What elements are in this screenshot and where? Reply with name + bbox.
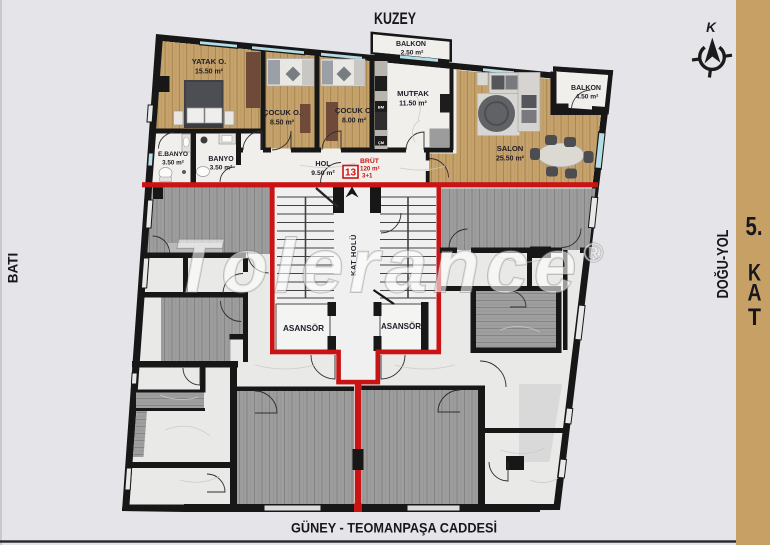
svg-text:13: 13 — [345, 168, 357, 179]
svg-text:BM: BM — [378, 105, 385, 110]
svg-text:5.: 5. — [746, 211, 763, 241]
svg-text:ASANSÖR: ASANSÖR — [381, 321, 421, 331]
svg-text:®: ® — [583, 238, 603, 268]
svg-text:11.50 m²: 11.50 m² — [399, 101, 427, 108]
svg-text:BATI: BATI — [6, 253, 21, 284]
svg-text:3.50 m²: 3.50 m² — [210, 165, 234, 172]
svg-text:DOĞU-YOL: DOĞU-YOL — [714, 230, 732, 299]
svg-text:3.50 m²: 3.50 m² — [162, 160, 184, 167]
svg-text:GÜNEY - TEOMANPAŞA CADDESİ: GÜNEY - TEOMANPAŞA CADDESİ — [291, 520, 497, 536]
svg-text:BRÜT: BRÜT — [360, 156, 380, 165]
svg-text:BALKON: BALKON — [396, 41, 426, 48]
svg-text:2.50 m²: 2.50 m² — [401, 50, 425, 57]
svg-text:K: K — [706, 20, 717, 35]
svg-text:ÇM: ÇM — [378, 140, 385, 145]
svg-text:T: T — [748, 304, 761, 331]
svg-text:ASANSÖR: ASANSÖR — [283, 323, 324, 333]
svg-text:ÇOCUK O.: ÇOCUK O. — [335, 106, 373, 115]
svg-text:9.50 m²: 9.50 m² — [311, 170, 335, 177]
svg-text:BALKON: BALKON — [571, 85, 601, 92]
svg-text:15.50 m²: 15.50 m² — [195, 69, 224, 76]
svg-text:SALON: SALON — [497, 144, 524, 153]
svg-text:120 m²: 120 m² — [360, 166, 380, 173]
svg-text:MUTFAK: MUTFAK — [397, 89, 429, 98]
svg-text:E.BANYO: E.BANYO — [158, 151, 188, 158]
svg-text:8.50 m²: 8.50 m² — [270, 120, 295, 127]
svg-text:A: A — [748, 280, 762, 307]
svg-text:25.50 m²: 25.50 m² — [496, 156, 525, 163]
svg-text:KUZEY: KUZEY — [374, 10, 416, 28]
svg-text:Tolerance: Tolerance — [172, 224, 582, 309]
svg-text:4.50 m²: 4.50 m² — [576, 94, 600, 101]
svg-text:BANYO: BANYO — [208, 156, 234, 163]
svg-text:YATAK O.: YATAK O. — [192, 57, 226, 66]
svg-text:HOL: HOL — [315, 159, 331, 168]
svg-text:3+1: 3+1 — [362, 173, 373, 180]
svg-text:ÇOCUK O.: ÇOCUK O. — [263, 108, 301, 117]
svg-text:8.00 m²: 8.00 m² — [342, 118, 367, 125]
